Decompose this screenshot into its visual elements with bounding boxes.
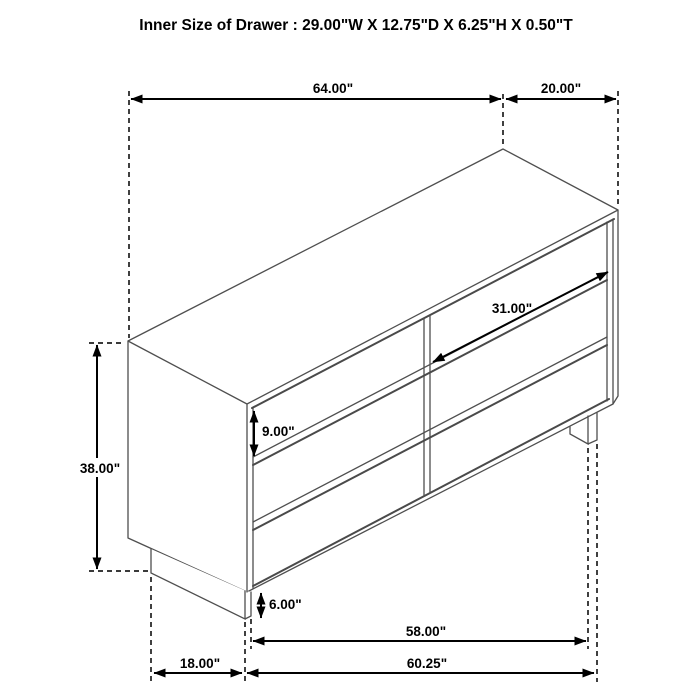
dim-base-outer-width-label: 60.25" [407, 656, 447, 671]
dim-drawer-width-label: 31.00" [492, 301, 532, 316]
diagram-title: Inner Size of Drawer : 29.00"W X 12.75"D… [139, 17, 573, 34]
dresser-drawing [128, 149, 618, 619]
dim-overall-height-label: 38.00" [80, 461, 120, 476]
dim-overall-height: 38.00" [74, 345, 126, 569]
dim-base-outer-width: 60.25" [247, 656, 594, 673]
dim-top-width-label: 64.00" [313, 81, 353, 96]
dim-top-width: 64.00" [131, 81, 501, 99]
dim-base-depth: 18.00" [154, 656, 242, 673]
dim-drawer-height-label: 9.00" [262, 424, 295, 439]
dimension-diagram-page: Inner Size of Drawer : 29.00"W X 12.75"D… [0, 0, 700, 700]
dim-leg-height-label: 6.00" [269, 597, 302, 612]
dim-leg-height: 6.00" [261, 593, 302, 618]
dimension-diagram-svg: Inner Size of Drawer : 29.00"W X 12.75"D… [0, 0, 700, 700]
dresser-body-outline [128, 149, 618, 592]
dim-base-inner-width: 58.00" [253, 624, 586, 641]
dim-top-depth-label: 20.00" [541, 81, 581, 96]
dim-top-depth: 20.00" [506, 81, 616, 99]
dim-base-inner-width-label: 58.00" [406, 624, 446, 639]
dim-base-depth-label: 18.00" [180, 656, 220, 671]
